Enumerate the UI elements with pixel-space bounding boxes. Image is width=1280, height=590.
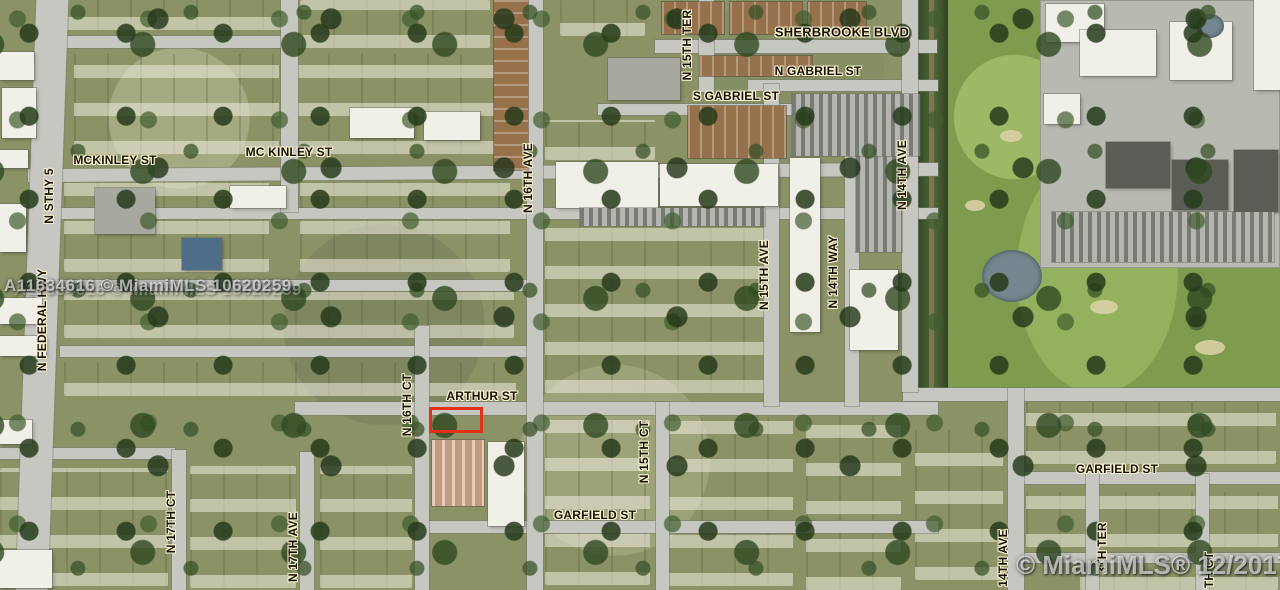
residential-block bbox=[915, 430, 1003, 580]
building bbox=[0, 550, 52, 588]
residential-block bbox=[1026, 402, 1276, 464]
residential-block bbox=[300, 0, 490, 48]
street-label-n-gabriel-st: N GABRIEL ST bbox=[775, 64, 862, 78]
road-n-15th-ct bbox=[656, 402, 669, 590]
road bbox=[62, 36, 302, 48]
building bbox=[0, 204, 26, 252]
building bbox=[608, 58, 680, 100]
sand-trap bbox=[1000, 130, 1022, 142]
parking-lot bbox=[580, 208, 765, 226]
subject-property-outline bbox=[429, 407, 483, 433]
street-label-n-15th-ave: N 15TH AVE bbox=[757, 240, 771, 310]
sand-trap bbox=[1090, 300, 1118, 314]
condo-building bbox=[850, 270, 898, 350]
residential-block bbox=[300, 182, 510, 272]
road bbox=[281, 0, 298, 212]
street-label-garfield-st-east: GARFIELD ST bbox=[1076, 462, 1158, 476]
road-n-16th-ct bbox=[415, 326, 429, 590]
building bbox=[230, 186, 286, 208]
campus-building bbox=[1172, 160, 1228, 210]
apartment-building bbox=[556, 162, 658, 208]
residential-block bbox=[320, 466, 412, 588]
residential-block bbox=[545, 120, 655, 160]
townhome-row bbox=[688, 106, 786, 158]
residential-block bbox=[806, 415, 901, 590]
campus-building bbox=[1044, 94, 1080, 124]
sand-trap bbox=[965, 200, 985, 211]
campus-building bbox=[1080, 30, 1156, 76]
apartment-building bbox=[432, 440, 484, 506]
street-label-n-15th-ct: N 15TH CT bbox=[637, 421, 651, 483]
building bbox=[0, 420, 32, 444]
road bbox=[60, 346, 530, 357]
building bbox=[488, 442, 524, 526]
street-label-arthur-st: ARTHUR ST bbox=[446, 389, 517, 403]
residential-block bbox=[545, 228, 770, 393]
building bbox=[424, 112, 480, 140]
small-pond bbox=[1196, 14, 1224, 38]
residential-block bbox=[545, 420, 650, 585]
campus-building bbox=[1254, 0, 1280, 90]
street-label-14th-ave-partial: 14TH AVE bbox=[996, 529, 1010, 587]
road-n-17th-ave bbox=[300, 452, 314, 590]
street-label-n-15th-ter: N 15TH TER bbox=[680, 10, 694, 81]
street-label-s-gabriel-st: S GABRIEL ST bbox=[693, 89, 779, 103]
canal bbox=[916, 0, 948, 390]
street-label-sherbrooke-blvd: SHERBROOKE BLVD bbox=[775, 25, 909, 40]
residential-block bbox=[668, 418, 793, 586]
aerial-map: SHERBROOKE BLVD N GABRIEL ST S GABRIEL S… bbox=[0, 0, 1280, 590]
campus-building bbox=[1234, 150, 1278, 212]
condo-building bbox=[790, 158, 820, 332]
residential-block bbox=[64, 0, 294, 30]
building bbox=[95, 188, 155, 234]
campus-building bbox=[1106, 142, 1170, 188]
building bbox=[2, 88, 36, 138]
road-n-16th-ave bbox=[527, 0, 543, 590]
residential-block bbox=[190, 466, 296, 588]
street-label-mckinley-st-west: MCKINLEY ST bbox=[73, 153, 156, 167]
road bbox=[903, 388, 1280, 401]
street-label-n-17th-ct: N 17TH CT bbox=[164, 491, 178, 553]
building bbox=[182, 238, 222, 270]
street-label-n-17th-ave: N 17TH AVE bbox=[286, 512, 300, 582]
road-arthur bbox=[295, 402, 938, 415]
residential-block bbox=[74, 54, 279, 154]
residential-block bbox=[1026, 492, 1278, 547]
mls-listing-watermark: A11634616 © MiamiMLS 10620259 bbox=[4, 276, 292, 296]
street-label-mckinley-st-east: MC KINLEY ST bbox=[246, 145, 333, 159]
building bbox=[0, 150, 28, 168]
street-label-garfield-st: GARFIELD ST bbox=[554, 508, 636, 522]
parking-lot bbox=[1052, 212, 1274, 262]
building bbox=[350, 108, 414, 138]
street-label-n-sthy-5: N STHY 5 bbox=[42, 168, 56, 223]
street-label-n-14th-way: N 14TH WAY bbox=[826, 236, 840, 309]
apartment-building bbox=[660, 164, 778, 206]
street-label-n-16th-ave: N 16TH AVE bbox=[521, 143, 535, 213]
mls-brand-watermark: © MiamiMLS® 12/2017 bbox=[1016, 550, 1280, 581]
road-sherbrooke bbox=[655, 40, 937, 53]
golf-pond bbox=[982, 250, 1042, 302]
sand-trap bbox=[1195, 340, 1225, 355]
street-label-n-14th-ave: N 14TH AVE bbox=[895, 140, 909, 210]
building bbox=[0, 52, 34, 80]
residential-block bbox=[560, 0, 645, 36]
street-label-n-16th-ct: N 16TH CT bbox=[400, 374, 414, 436]
